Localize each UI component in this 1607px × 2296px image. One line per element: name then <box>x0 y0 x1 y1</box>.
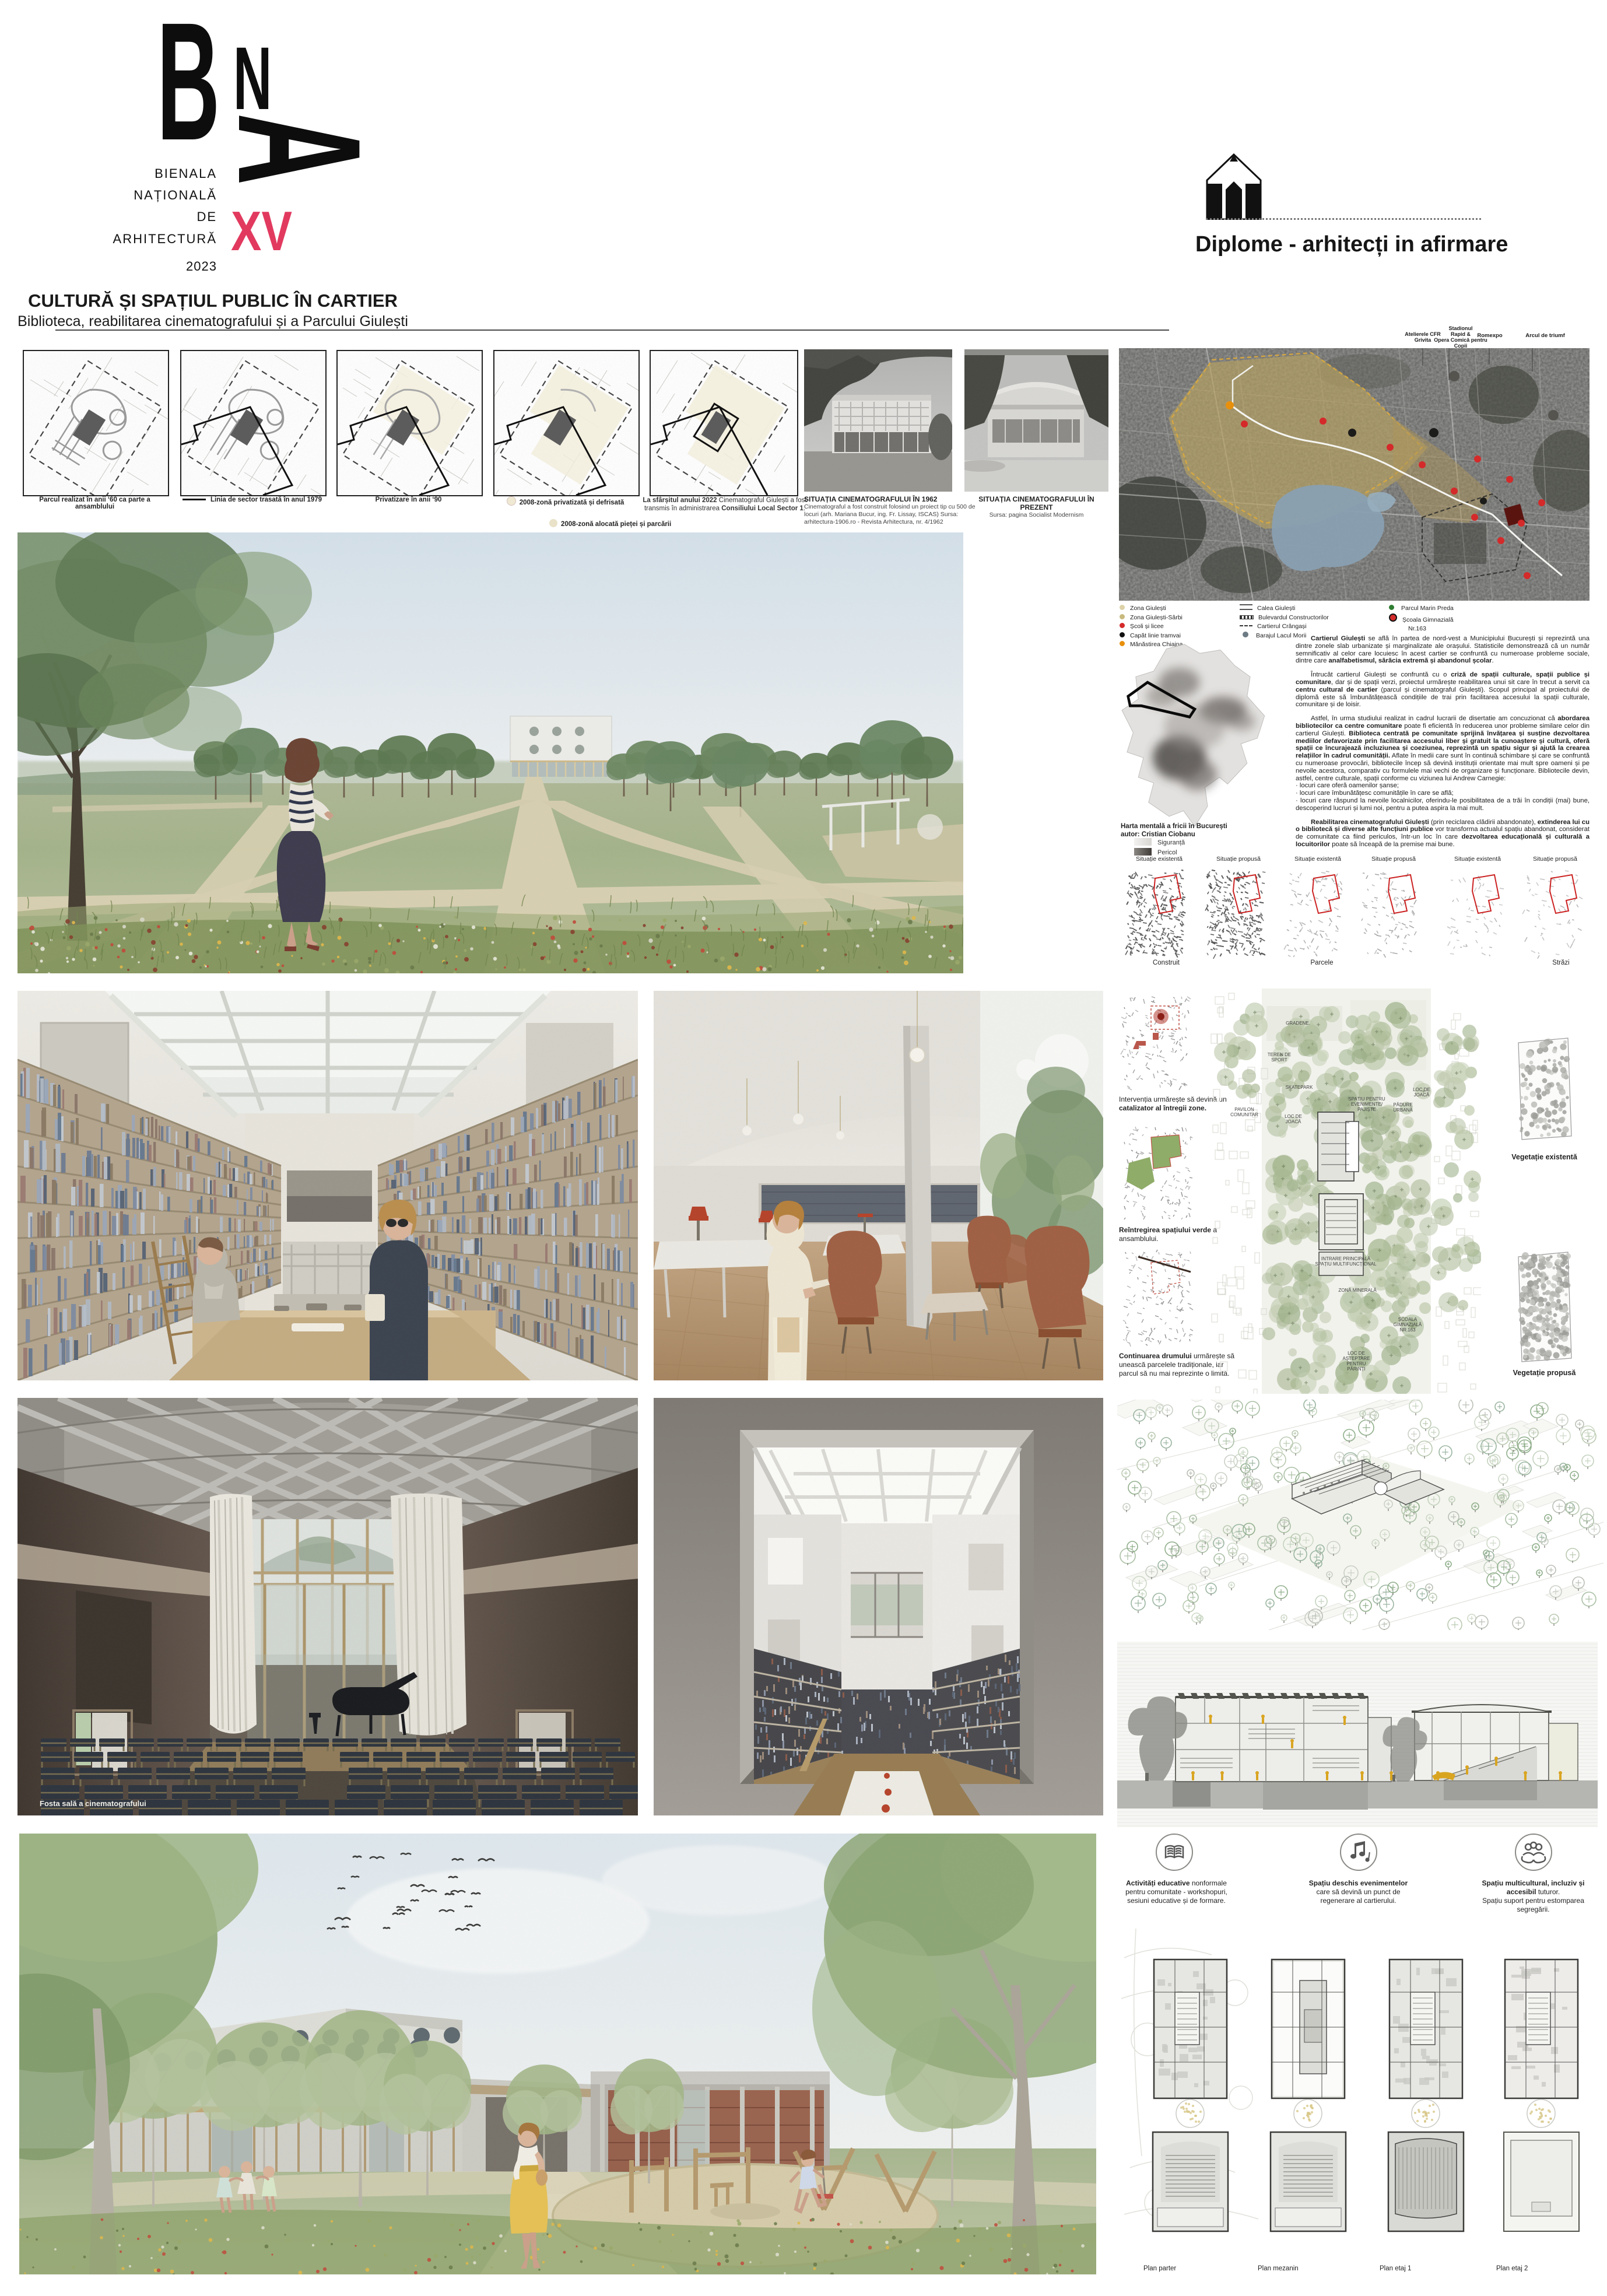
svg-text:LOC DE: LOC DE <box>1285 1114 1302 1119</box>
svg-text:PENTRU: PENTRU <box>1347 1361 1366 1366</box>
svg-text:GIMNAZIALĂ: GIMNAZIALĂ <box>1394 1322 1422 1327</box>
svg-text:SKATEPARK: SKATEPARK <box>1286 1085 1313 1090</box>
svg-text:ȘCOALA: ȘCOALA <box>1398 1317 1417 1322</box>
svg-text:SPAȚIU PENTRU: SPAȚIU PENTRU <box>1348 1096 1385 1102</box>
svg-text:PAVILON: PAVILON <box>1234 1107 1254 1112</box>
svg-text:TEREN DE: TEREN DE <box>1268 1052 1291 1057</box>
svg-text:ARHITECTURĂ: ARHITECTURĂ <box>113 232 217 246</box>
svg-text:JOACĂ: JOACĂ <box>1286 1119 1301 1124</box>
svg-text:AȘTEPTARE: AȘTEPTARE <box>1343 1356 1370 1361</box>
svg-text:ZONĂ MINERALĂ: ZONĂ MINERALĂ <box>1338 1288 1377 1293</box>
svg-text:Fosta sală a cinematografului: Fosta sală a cinematografului <box>40 1799 146 1808</box>
svg-text:LOC DE: LOC DE <box>1348 1351 1365 1356</box>
svg-text:COMUNITAR: COMUNITAR <box>1230 1112 1258 1117</box>
svg-text:A: A <box>202 113 397 185</box>
svg-text:EVENIMENTE/: EVENIMENTE/ <box>1351 1102 1383 1107</box>
svg-text:XV: XV <box>231 200 292 262</box>
svg-text:INTRARE PRINCIPALĂ: INTRARE PRINCIPALĂ <box>1321 1256 1371 1261</box>
svg-text:SPAȚIU MULTIFUNCȚIONAL: SPAȚIU MULTIFUNCȚIONAL <box>1315 1261 1377 1267</box>
svg-text:DE: DE <box>197 209 217 224</box>
svg-text:PĂDURE: PĂDURE <box>1393 1102 1412 1107</box>
svg-text:NAȚIONALĂ: NAȚIONALĂ <box>134 188 217 202</box>
svg-text:JOACĂ: JOACĂ <box>1414 1092 1430 1098</box>
svg-text:GRADENE.: GRADENE. <box>1286 1021 1310 1026</box>
svg-text:SPORT: SPORT <box>1271 1057 1287 1063</box>
svg-text:URBANĂ: URBANĂ <box>1393 1107 1413 1113</box>
svg-text:PAJIȘTE: PAJIȘTE <box>1357 1107 1376 1112</box>
svg-text:PĂRINȚI: PĂRINȚI <box>1347 1366 1366 1372</box>
svg-text:LOC DE: LOC DE <box>1413 1087 1430 1092</box>
svg-text:2023: 2023 <box>186 259 217 274</box>
svg-text:NR.163: NR.163 <box>1399 1327 1416 1333</box>
svg-text:BIENALA: BIENALA <box>155 166 217 181</box>
